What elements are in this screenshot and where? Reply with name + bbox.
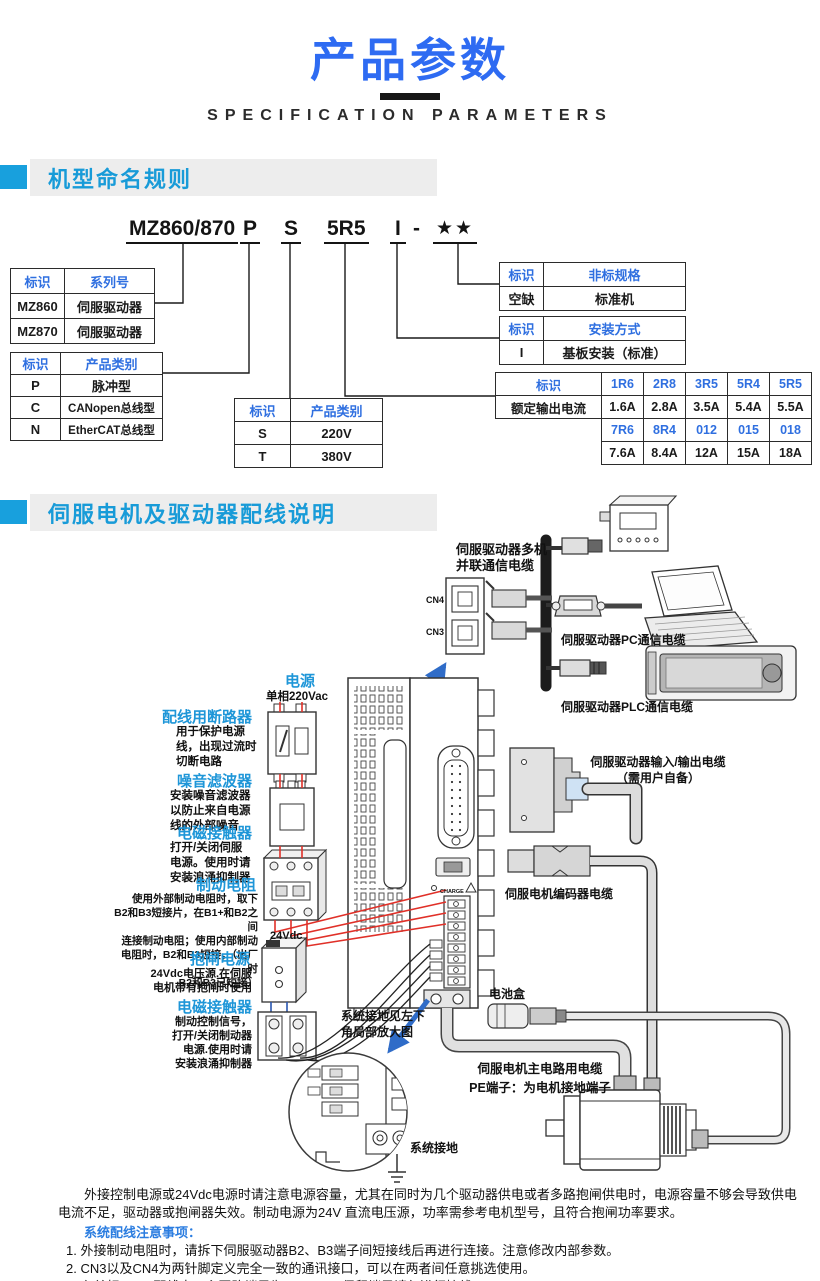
notes-heading: 系统配线注意事项： [84,1224,806,1242]
table-cell: 2R8 [644,373,686,396]
page-subtitle: SPECIFICATION PARAMETERS [0,107,820,125]
noise-filter-symbol [270,781,314,846]
table-cell: 015 [728,419,770,442]
contactor1-label: 电磁接触器 [156,822,252,843]
table-cell: MZ870 [11,319,65,344]
cn-port-box [446,578,552,654]
servo-drive-unit [348,678,494,1020]
table-cell: I [500,341,544,365]
model-code-voltage: S [281,215,301,244]
model-code-product-type: P [240,215,260,244]
naming-connector-lines [154,244,499,398]
page: 产品参数 SPECIFICATION PARAMETERS 机型命名规则 MZ8… [0,0,820,1281]
breaker-desc: 用于保护电源 线，出现过流时 切断电路 [176,725,262,770]
power-sub-label: 单相220Vac [266,689,328,705]
table-cell: 伺服驱动器 [65,319,155,344]
table-cell: 5R5 [770,373,812,396]
table-cell: 15A [728,442,770,465]
breaker-symbol [268,704,316,782]
contactor2-symbol [258,1012,316,1060]
breaker-label: 配线用断路器 [156,706,252,727]
table-cell: 1R6 [602,373,644,396]
table-cell: 12A [686,442,728,465]
power-label: 电源 [270,670,330,691]
table-cell: EtherCAT总线型 [61,419,163,441]
table-header: 标识 [11,353,61,375]
mounting-table: 标识 安装方式 I 基板安装（标准） [499,316,686,365]
title-underline-bar [380,93,440,100]
charge-label: CHARGE [440,884,464,900]
contactor1-symbol [264,850,326,920]
table-header: 标识 [11,269,65,294]
servo-keypad-device [600,496,676,551]
table-cell: 7.6A [602,442,644,465]
table-cell: 5.5A [770,396,812,419]
table-cell: MZ860 [11,294,65,319]
rated-current-table-top: 标识 1R6 2R8 3R5 5R4 5R5 额定输出电流 1.6A 2.8A … [495,372,812,419]
ground-detail-circle [289,1052,414,1182]
table-header: 产品类别 [291,399,383,422]
plc-device [646,646,796,700]
series-table: 标识 系列号 MZ860 伺服驱动器 MZ870 伺服驱动器 [10,268,155,344]
table-cell: S [235,422,291,445]
table-cell: 3R5 [686,373,728,396]
comm-trunk [546,496,796,700]
model-code-current: 5R5 [324,215,369,244]
cn3-label: CN3 [426,624,444,640]
table-header: 标识 [496,373,602,396]
table-cell: 018 [770,419,812,442]
brake-psu-desc: 24Vdc电压源.在伺服 电机带有抱闸时使用 [142,967,252,995]
page-title: 产品参数 [0,24,820,90]
table-cell: 标准机 [544,287,686,311]
table-cell: 380V [291,445,383,468]
encoder-cable-label: 伺服电机编码器电缆 [505,886,613,902]
notes-item: 1. 外接制动电阻时，请拆下伺服驱动器B2、B3端子间短接线后再进行连接。注意修… [66,1242,806,1260]
contactor2-desc: 制动控制信号， 打开/关闭制动器 电源.使用时请 安装浪涌抑制器 [160,1015,252,1071]
table-cell: 8R4 [644,419,686,442]
voltage-table: 标识 产品类别 S 220V T 380V [234,398,383,468]
psu-24v-tag: 24Vdc [270,928,302,944]
notes-block: 外接控制电源或24Vdc电源时请注意电源容量，尤其在同时为几个驱动器供电或者多路… [58,1186,806,1281]
table-cell: CANopen总线型 [61,397,163,419]
table-header: 标识 [235,399,291,422]
battery-box-symbol [488,1004,566,1028]
table-header: 标识 [500,263,544,287]
table-header: 非标规格 [544,263,686,287]
table-cell: 5R4 [728,373,770,396]
model-code-mounting: I [390,215,406,244]
model-code-separator: - [410,215,423,242]
table-header: 产品类别 [61,353,163,375]
db9-connector [552,596,642,616]
model-code-stars: ★★ [433,215,477,244]
ground-symbol [388,1154,406,1182]
cn4-label: CN4 [426,592,444,608]
table-cell: 3.5A [686,396,728,419]
section-marker-square [0,165,27,189]
section-wiring-bar: 伺服电机及驱动器配线说明 [30,494,437,531]
ground-note-label: 系统接地见左下 角局部放大图 [341,1008,425,1040]
section-marker-square [0,500,27,524]
contactor2-label: 电磁接触器 [156,996,252,1017]
table-cell: C [11,397,61,419]
table-cell: 基板安装（标准） [544,341,686,365]
table-cell: P [11,375,61,397]
table-header: 标识 [500,317,544,341]
table-cell: 2.8A [644,396,686,419]
section-naming-bar: 机型命名规则 [30,159,437,196]
brake-psu-label: 抱闸电源 [154,948,250,969]
table-cell: 5.4A [728,396,770,419]
noise-filter-label: 噪音滤波器 [156,770,252,791]
multi-comm-label: 伺服驱动器多机 并联通信电缆 [456,542,547,574]
table-cell: N [11,419,61,441]
pc-cable-label: 伺服驱动器PC通信电缆 [561,632,686,648]
rated-current-table-bottom: 7R6 8R4 012 015 018 7.6A 8.4A 12A 15A 18… [601,418,812,465]
battery-label: 电池盒 [489,986,525,1002]
psu-wires [271,1002,287,1012]
psu-24v-symbol [262,938,306,1002]
table-cell: 脉冲型 [61,375,163,397]
table-cell: 1.6A [602,396,644,419]
table-cell: T [235,445,291,468]
section-wiring-heading: 伺服电机及驱动器配线说明 [48,497,336,529]
notes-paragraph: 外接控制电源或24Vdc电源时请注意电源容量，尤其在同时为几个驱动器供电或者多路… [58,1186,806,1222]
table-header: 系列号 [65,269,155,294]
notes-item: 2. CN3以及CN4为两针脚定义完全一致的通讯接口，可以在两者间任意挑选使用。 [66,1260,806,1278]
system-ground-label: 系统接地 [410,1140,458,1156]
table-cell: 18A [770,442,812,465]
table-cell: 空缺 [500,287,544,311]
table-header: 额定输出电流 [496,396,602,419]
product-type-table: 标识 产品类别 P 脉冲型 C CANopen总线型 N EtherCAT总线型 [10,352,163,441]
io-cable-label: 伺服驱动器输入/输出电缆 （需用户自备） [583,754,733,786]
motor-cable-label: 伺服电机主电路用电缆 PE端子：为电机接地端子 [452,1060,628,1098]
table-cell: 220V [291,422,383,445]
section-naming-heading: 机型命名规则 [48,162,192,194]
table-cell: 7R6 [602,419,644,442]
model-code-series: MZ860/870 [126,215,238,244]
table-header: 安装方式 [544,317,686,341]
table-cell: 8.4A [644,442,686,465]
table-cell: 012 [686,419,728,442]
plc-cable-label: 伺服驱动器PLC通信电缆 [561,699,693,715]
nonstandard-table: 标识 非标规格 空缺 标准机 [499,262,686,311]
table-cell: 伺服驱动器 [65,294,155,319]
